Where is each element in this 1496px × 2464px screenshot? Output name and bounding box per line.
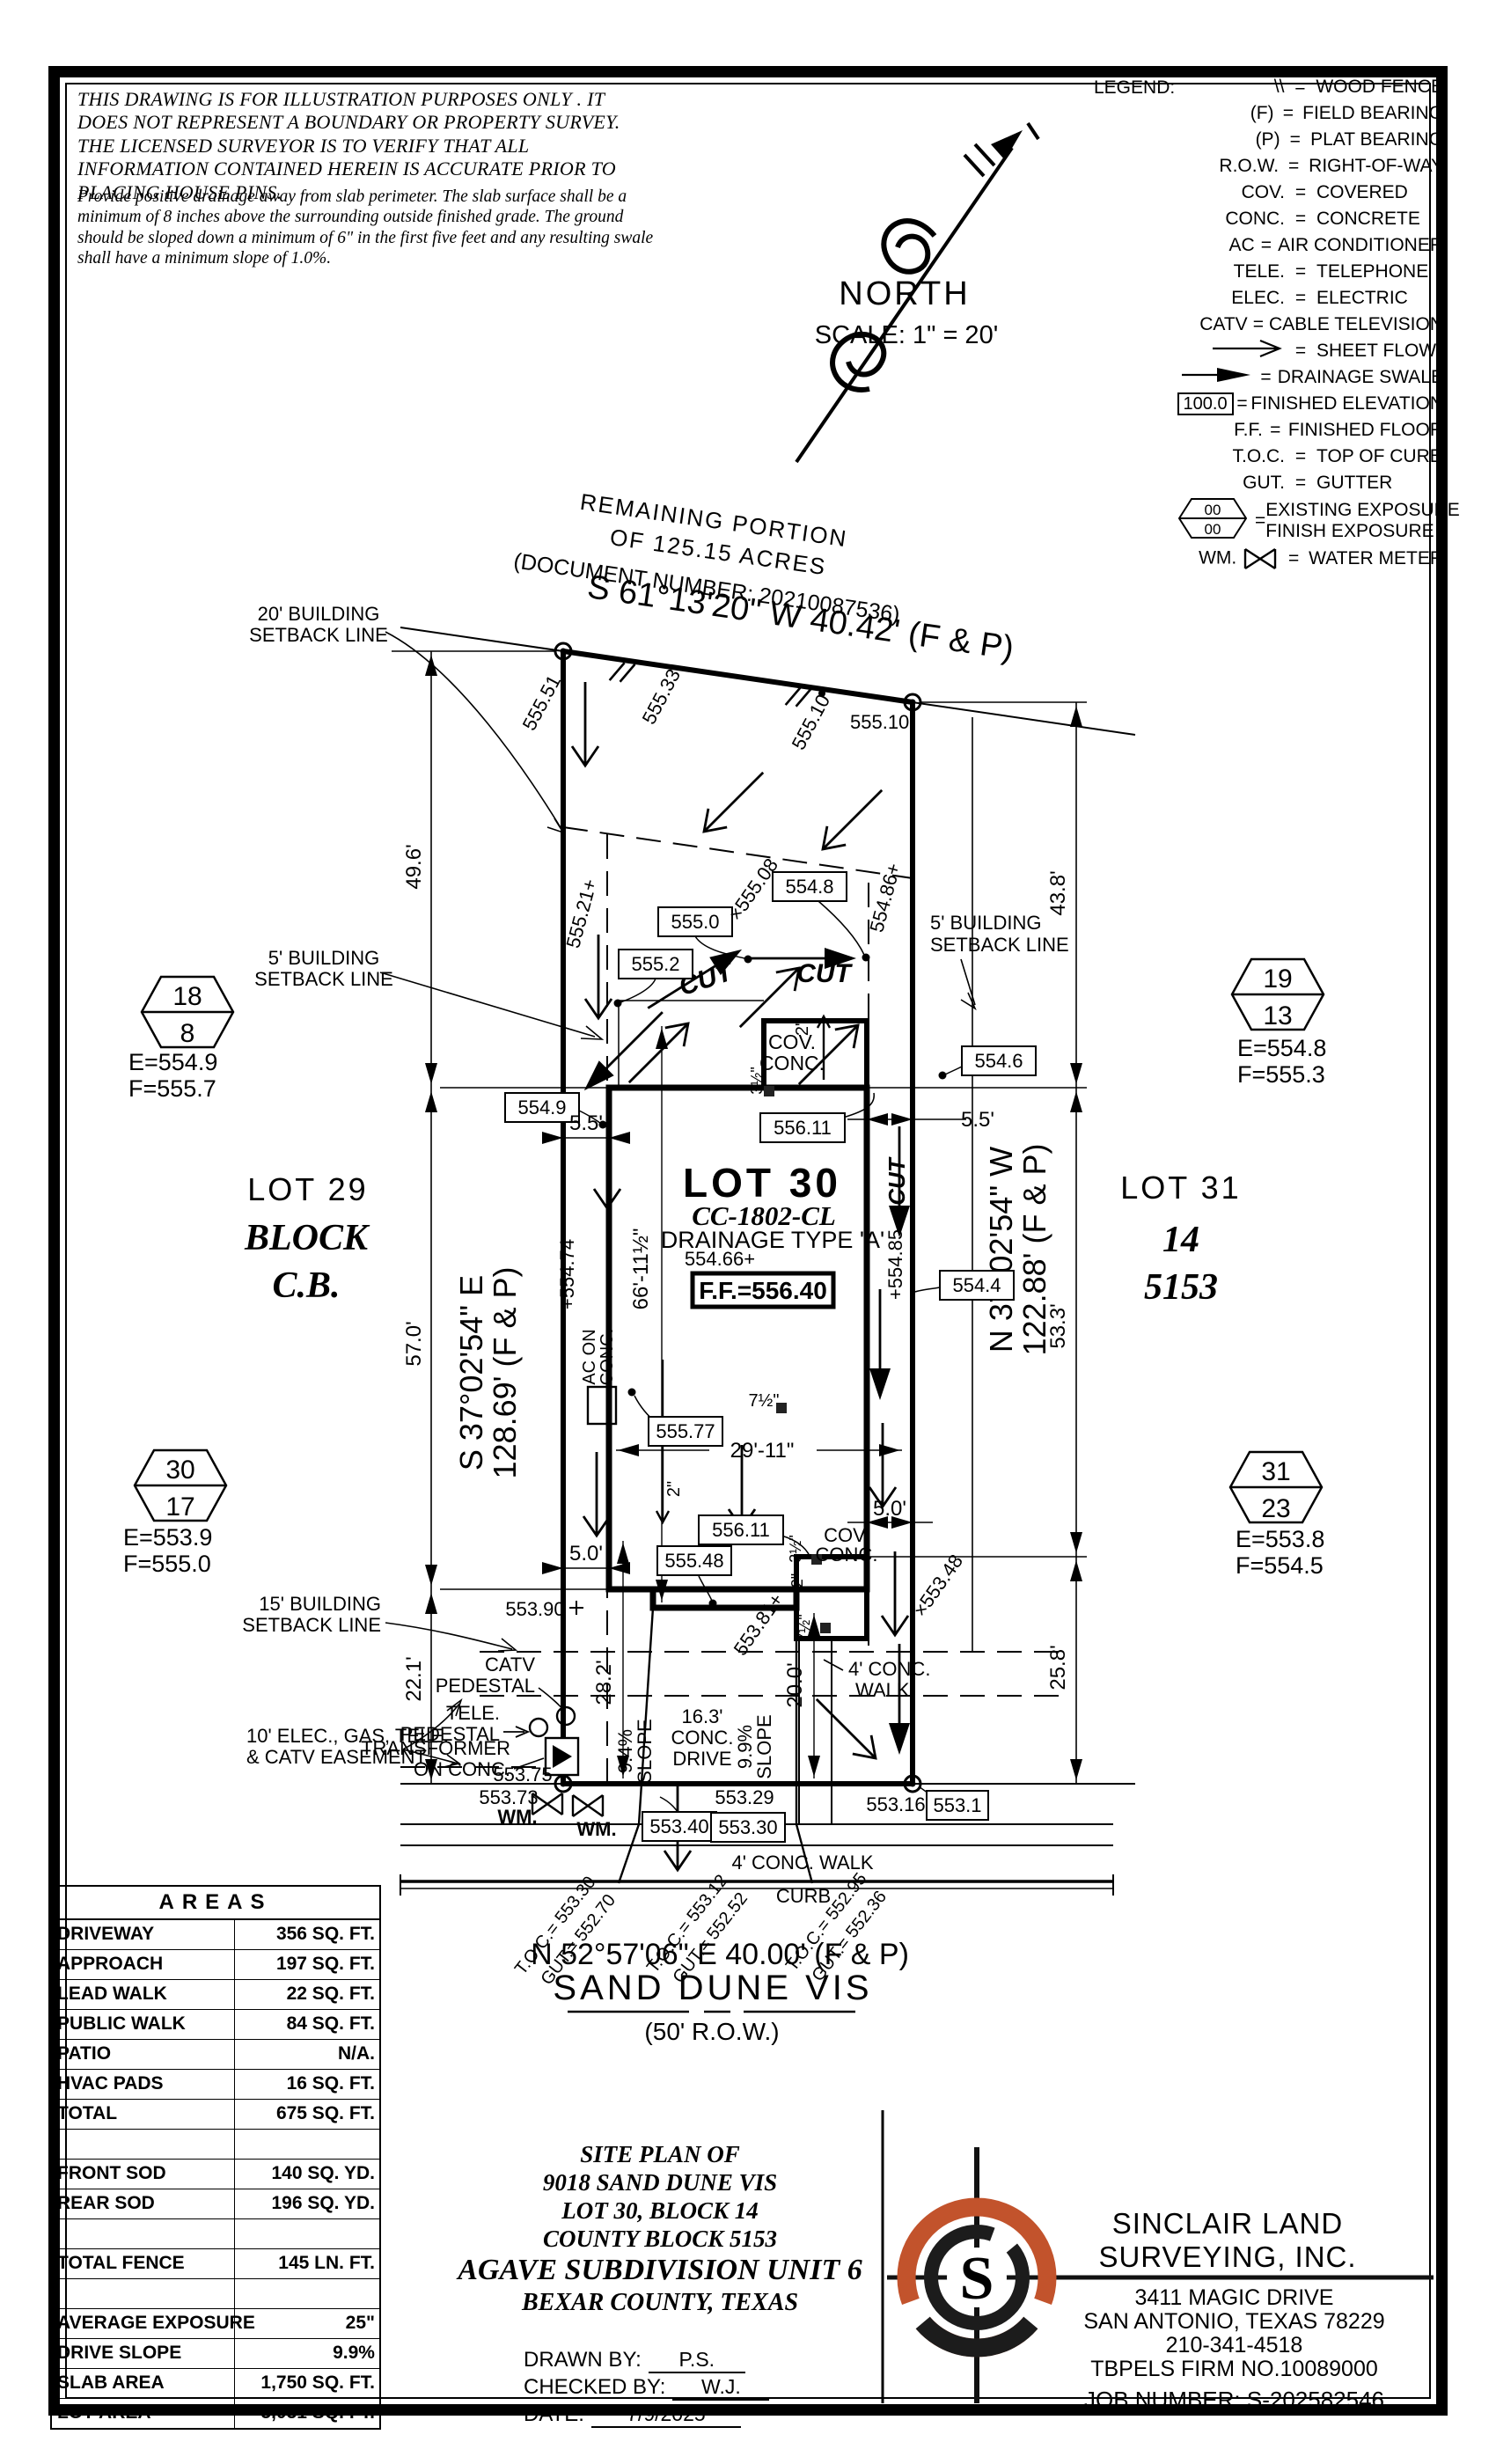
- company-name-line2: SURVEYING, INC.: [1069, 2240, 1386, 2274]
- drive-conc: CONC.: [671, 1727, 734, 1749]
- lot31-label: LOT 31: [1120, 1170, 1241, 1206]
- flag-top: 19: [1263, 964, 1292, 994]
- flag-bottom: 13: [1263, 1001, 1292, 1030]
- wm-label: WM.: [497, 1806, 537, 1828]
- title-line5: AGAVE SUBDIVISION UNIT 6: [414, 2253, 906, 2288]
- table-row: AVERAGE EXPOSURE25": [52, 2309, 379, 2339]
- table-row: TOTAL675 SQ. FT.: [52, 2100, 379, 2130]
- street-name: SAND DUNE VIS: [553, 1969, 872, 2007]
- curb-label: CURB: [776, 1885, 831, 1907]
- row-value: [235, 2219, 379, 2248]
- front-walk-line1: 4' CONC.: [848, 1658, 930, 1680]
- row-label: [52, 2279, 235, 2308]
- row-value: 1,750 SQ. FT.: [235, 2369, 379, 2398]
- right-bearing-line1: N 37°02'54" W: [983, 1147, 1019, 1353]
- dim-66-11: 66'-11½": [629, 1228, 653, 1310]
- row-label: LOT AREA: [52, 2399, 235, 2428]
- dim-22-1: 22.1': [402, 1656, 426, 1701]
- row-label: [52, 2219, 235, 2248]
- ac-label-line1: AC ON: [580, 1329, 599, 1384]
- finish-elev: F=555.0: [123, 1551, 211, 1577]
- finish-elev: F=555.3: [1237, 1061, 1325, 1088]
- row-value: 84 SQ. FT.: [235, 2010, 379, 2039]
- title-line4: COUNTY BLOCK 5153: [414, 2225, 906, 2253]
- row-value: 196 SQ. YD.: [235, 2189, 379, 2218]
- row-value: 675 SQ. FT.: [235, 2100, 379, 2129]
- dim-7half: 7½": [749, 1391, 780, 1411]
- scale-label: SCALE: 1" = 20': [815, 321, 998, 349]
- drawn-by-label: DRAWN BY:: [524, 2348, 642, 2372]
- dim-5-5-left: 5.5': [569, 1111, 603, 1135]
- flag-top: 31: [1261, 1457, 1290, 1486]
- title-line1: SITE PLAN OF: [414, 2140, 906, 2168]
- existing-elev: E=553.9: [123, 1524, 212, 1551]
- flag-top: 18: [172, 982, 202, 1011]
- spot-553-16: 553.16: [866, 1793, 925, 1815]
- elev-556-11: 556.11: [712, 1519, 770, 1541]
- dim-3half: 3½": [787, 1535, 804, 1562]
- drive-dim: 16.3': [681, 1705, 722, 1727]
- wm-label: WM.: [576, 1818, 616, 1840]
- elev-553-1: 553.1: [933, 1794, 981, 1816]
- ff-spot-elevation: 554.66+: [685, 1248, 755, 1270]
- elev-553-40: 553.40: [649, 1815, 708, 1837]
- tele-pedestal-line1: TELE.: [446, 1702, 500, 1724]
- block-label: BLOCK: [244, 1218, 370, 1258]
- lot31-block: 14: [1162, 1220, 1199, 1260]
- row-value: 25": [235, 2309, 379, 2338]
- dim-29-11: 29'-11": [730, 1439, 795, 1463]
- drawn-by-value: P.S.: [649, 2348, 745, 2373]
- row-value: [235, 2279, 379, 2308]
- row-value: 356 SQ. FT.: [235, 1920, 379, 1949]
- existing-elev: E=554.8: [1237, 1035, 1326, 1061]
- elev-554-4: 554.4: [952, 1274, 1001, 1296]
- dim-2in: 2": [793, 1020, 812, 1036]
- table-row: HVAC PADS16 SQ. FT.: [52, 2070, 379, 2100]
- row-value: 145 LN. FT.: [235, 2249, 379, 2278]
- dim-2in: 2": [788, 1573, 806, 1588]
- flag-bottom: 23: [1261, 1494, 1290, 1523]
- porch-conc-label: CONC.: [759, 1052, 825, 1074]
- cut-label: CUT: [796, 959, 853, 988]
- row-label: FRONT SOD: [52, 2160, 235, 2189]
- finish-elev: F=555.7: [128, 1075, 216, 1102]
- spot-553-81: 553.81+: [730, 1589, 788, 1660]
- flag-bottom: 8: [180, 1019, 195, 1048]
- elev-554-6: 554.6: [974, 1050, 1023, 1072]
- setback15-line1: 15' BUILDING: [259, 1593, 381, 1615]
- checked-by-label: CHECKED BY:: [524, 2375, 665, 2399]
- site-plan-sheet: THIS DRAWING IS FOR ILLUSTRATION PURPOSE…: [0, 0, 1496, 2464]
- title-line6: BEXAR COUNTY, TEXAS: [414, 2288, 906, 2318]
- front-bearing: N 52°57'06" E 40.00' (F & P): [531, 1938, 909, 1971]
- dim-43-8: 43.8': [1046, 870, 1070, 915]
- row-value: 197 SQ. FT.: [235, 1950, 379, 1979]
- date-value: 7/9/2025: [591, 2402, 741, 2428]
- table-row: LEAD WALK22 SQ. FT.: [52, 1980, 379, 2010]
- row-label: PATIO: [52, 2040, 235, 2069]
- slope-word: SLOPE: [753, 1714, 775, 1778]
- lot30-label: LOT 30: [683, 1160, 841, 1206]
- street-row: (50' R.O.W.): [644, 2018, 779, 2045]
- dim-49-6: 49.6': [402, 844, 426, 889]
- front-walk-line2: WALK: [855, 1679, 910, 1701]
- elev-556-11: 556.11: [774, 1117, 832, 1139]
- finished-floor-value: F.F.=556.40: [699, 1277, 827, 1304]
- row-label: PUBLIC WALK: [52, 2010, 235, 2039]
- flag-bottom: 17: [165, 1492, 194, 1522]
- row-label: LEAD WALK: [52, 1980, 235, 2009]
- company-city: SAN ANTONIO, TEXAS 78229: [1069, 2310, 1399, 2334]
- company-phone: 210-341-4518: [1069, 2334, 1399, 2358]
- company-street: 3411 MAGIC DRIVE: [1069, 2286, 1399, 2310]
- table-row: PUBLIC WALK84 SQ. FT.: [52, 2010, 379, 2040]
- row-value: 22 SQ. FT.: [235, 1980, 379, 2009]
- table-row: APPROACH197 SQ. FT.: [52, 1950, 379, 1980]
- table-row: FRONT SOD140 SQ. YD.: [52, 2160, 379, 2189]
- row-value: 9.9%: [235, 2339, 379, 2368]
- dim-2in: 2": [664, 1481, 684, 1497]
- title-line2: 9018 SAND DUNE VIS: [414, 2168, 906, 2196]
- row-label: TOTAL: [52, 2100, 235, 2129]
- spot-555-10: 555.10: [850, 711, 909, 733]
- row-label: SLAB AREA: [52, 2369, 235, 2398]
- finish-elev: F=554.5: [1236, 1552, 1324, 1579]
- elev-555-48: 555.48: [664, 1550, 723, 1572]
- drive-word: DRIVE: [672, 1748, 731, 1770]
- catv-pedestal-line1: CATV: [485, 1654, 535, 1676]
- dim-5-0-left: 5.0': [569, 1542, 603, 1566]
- elev-553-30: 553.30: [718, 1816, 777, 1838]
- exposure-flag-18-8: 18 8 E=554.9 F=555.7: [128, 977, 233, 1102]
- signature-block: DRAWN BY:P.S. CHECKED BY:W.J. DATE:7/9/2…: [524, 2348, 893, 2430]
- checked-by-value: W.J.: [672, 2375, 769, 2401]
- flag-top: 30: [165, 1456, 194, 1485]
- table-row: PATION/A.: [52, 2040, 379, 2070]
- company-firm-number: TBPELS FIRM NO.10089000: [1069, 2358, 1399, 2381]
- rear-bearing: S 61°13'20" W 40.42' (F & P): [585, 568, 1016, 667]
- table-row: REAR SOD196 SQ. YD.: [52, 2189, 379, 2219]
- title-block: SITE PLAN OF 9018 SAND DUNE VIS LOT 30, …: [414, 2140, 906, 2318]
- setback5-left-line1: 5' BUILDING: [268, 947, 379, 969]
- lot29-label: LOT 29: [247, 1171, 368, 1207]
- transformer-line1: TRANSFORMER: [361, 1737, 510, 1759]
- table-row: SLAB AREA1,750 SQ. FT.: [52, 2369, 379, 2399]
- dim-57-0: 57.0': [402, 1321, 426, 1366]
- left-bearing-line2: 128.69' (F & P): [487, 1267, 523, 1479]
- slope-word: SLOPE: [634, 1719, 656, 1783]
- table-row: DRIVEWAY356 SQ. FT.: [52, 1920, 379, 1950]
- north-label: NORTH: [839, 275, 970, 312]
- company-address: 3411 MAGIC DRIVE SAN ANTONIO, TEXAS 7822…: [1069, 2286, 1399, 2381]
- exposure-flag-30-17: 30 17 E=553.9 F=555.0: [123, 1450, 226, 1577]
- elev-555-77: 555.77: [656, 1420, 715, 1442]
- table-row: [52, 2279, 379, 2309]
- spot-553-75: 553.75: [493, 1764, 552, 1786]
- spot-555-33: 555.33: [638, 665, 686, 728]
- water-meter-icon: [573, 1795, 603, 1816]
- exposure-flag-19-13: 19 13 E=554.8 F=555.3: [1232, 959, 1326, 1088]
- dim-53-3: 53.3': [1046, 1303, 1070, 1348]
- ac-label-line2: CONC.: [598, 1329, 617, 1385]
- table-row: LOT AREA5,031 SQ. FT.: [52, 2399, 379, 2428]
- setback15-line2: SETBACK LINE: [242, 1614, 381, 1636]
- row-label: DRIVE SLOPE: [52, 2339, 235, 2368]
- spot-553-29: 553.29: [715, 1786, 774, 1808]
- row-value: 16 SQ. FT.: [235, 2070, 379, 2099]
- spot-554-74: +554.74: [556, 1239, 578, 1309]
- elev-554-8: 554.8: [785, 876, 833, 898]
- title-line3: LOT 30, BLOCK 14: [414, 2196, 906, 2225]
- elev-555-2: 555.2: [631, 953, 679, 975]
- stoop-conc-label: CONC.: [816, 1544, 878, 1566]
- existing-elev: E=553.8: [1236, 1526, 1324, 1552]
- job-number: JOB NUMBER: S-202582546: [1069, 2387, 1399, 2414]
- setback5-left-line2: SETBACK LINE: [254, 968, 393, 990]
- existing-elev: E=554.9: [128, 1049, 217, 1075]
- exposure-flag-31-23: 31 23 E=553.8 F=554.5: [1230, 1452, 1324, 1579]
- wood-fence-mark: [610, 661, 635, 683]
- dim-28-2: 28.2': [592, 1660, 616, 1705]
- row-value: 140 SQ. YD.: [235, 2160, 379, 2189]
- spot-553-90: 553.90: [505, 1598, 564, 1620]
- row-value: 5,031 SQ. FT.: [235, 2399, 379, 2428]
- elev-554-9: 554.9: [517, 1096, 566, 1118]
- spot-553-48: ×553.48: [909, 1551, 967, 1621]
- table-row: TOTAL FENCE145 LN. FT.: [52, 2249, 379, 2279]
- setback20-line2: SETBACK LINE: [249, 624, 388, 646]
- block-cb-label: C.B.: [272, 1265, 340, 1306]
- dim-25-8: 25.8': [1046, 1645, 1070, 1690]
- catv-pedestal-line2: PEDESTAL: [436, 1675, 535, 1697]
- dim-3half: 3½": [748, 1067, 766, 1094]
- date-label: DATE:: [524, 2402, 584, 2426]
- dim-7half: 7½": [796, 1614, 813, 1641]
- row-label: HVAC PADS: [52, 2070, 235, 2099]
- logo-letter: S: [960, 2245, 994, 2313]
- areas-table: AREAS DRIVEWAY356 SQ. FT. APPROACH197 SQ…: [50, 1885, 381, 2430]
- left-bearing-line1: S 37°02'54" E: [453, 1275, 489, 1470]
- table-row: DRIVE SLOPE9.9%: [52, 2339, 379, 2369]
- setback20-line1: 20' BUILDING: [258, 603, 380, 625]
- elev-555-0: 555.0: [671, 911, 719, 933]
- spot-555-21: 555.21+: [561, 876, 601, 950]
- table-row: [52, 2130, 379, 2160]
- tele-pedestal: [530, 1719, 547, 1736]
- spot-554-85: +554.85: [884, 1229, 906, 1300]
- table-row: [52, 2219, 379, 2249]
- company-name-line1: SINCLAIR LAND: [1069, 2207, 1386, 2240]
- row-label: AVERAGE EXPOSURE: [52, 2309, 235, 2338]
- dim-20-0: 20.0': [783, 1662, 807, 1707]
- cut-label: CUT: [884, 1156, 910, 1206]
- row-label: APPROACH: [52, 1950, 235, 1979]
- spot-555-51: 555.51: [518, 671, 566, 734]
- row-label: DRIVEWAY: [52, 1920, 235, 1949]
- dim-5-5-right: 5.5': [961, 1108, 994, 1132]
- row-value: N/A.: [235, 2040, 379, 2069]
- setback5-right-line2: SETBACK LINE: [930, 934, 1069, 956]
- dim-5-0-right: 5.0': [873, 1497, 906, 1521]
- company-name: SINCLAIR LAND SURVEYING, INC.: [1069, 2207, 1386, 2274]
- spot-555-10: 555.10: [788, 691, 835, 753]
- row-label: TOTAL FENCE: [52, 2249, 235, 2278]
- setback5-right-line1: 5' BUILDING: [930, 912, 1041, 934]
- areas-title: AREAS: [52, 1887, 379, 1920]
- lot31-cb: 5153: [1144, 1267, 1218, 1308]
- row-label: REAR SOD: [52, 2189, 235, 2218]
- row-label: [52, 2130, 235, 2159]
- row-value: [235, 2130, 379, 2159]
- public-walk-label: 4' CONC. WALK: [731, 1852, 873, 1874]
